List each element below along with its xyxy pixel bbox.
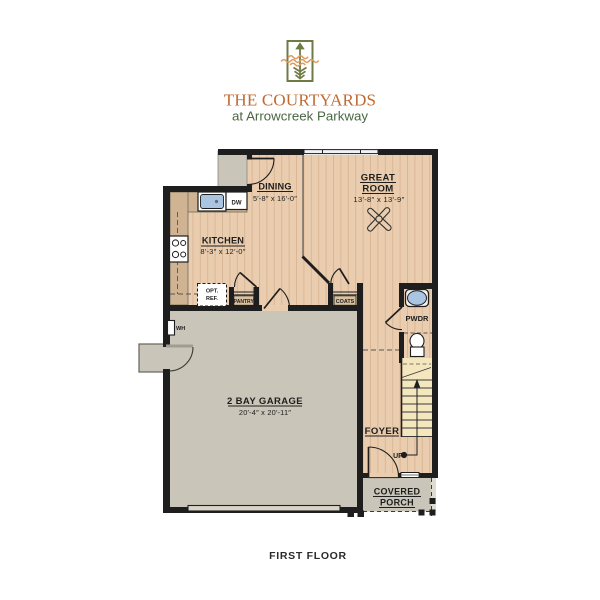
svg-text:FOYER: FOYER (365, 426, 400, 437)
svg-text:DINING: DINING (258, 182, 291, 192)
svg-text:THE COURTYARDS: THE COURTYARDS (224, 91, 376, 110)
svg-text:OPT.: OPT. (206, 289, 219, 295)
svg-text:20′-4″ x 20′-11″: 20′-4″ x 20′-11″ (239, 408, 291, 417)
svg-text:COATS: COATS (336, 299, 355, 305)
svg-text:REF.: REF. (206, 296, 218, 302)
svg-text:KITCHEN: KITCHEN (202, 236, 244, 246)
svg-text:5′-8″ x 16′-0″: 5′-8″ x 16′-0″ (253, 194, 297, 203)
svg-text:GREAT: GREAT (361, 173, 396, 184)
svg-text:PWDR: PWDR (406, 314, 429, 323)
svg-text:8′-3″ x 12′-0″: 8′-3″ x 12′-0″ (200, 247, 245, 256)
svg-text:FIRST FLOOR: FIRST FLOOR (269, 550, 347, 562)
svg-text:13′-8″ x 13′-9″: 13′-8″ x 13′-9″ (353, 195, 404, 204)
svg-text:at Arrowcreek Parkway: at Arrowcreek Parkway (232, 109, 368, 124)
svg-text:DW: DW (232, 201, 242, 207)
svg-text:2 BAY GARAGE: 2 BAY GARAGE (227, 396, 303, 407)
svg-text:ROOM: ROOM (362, 184, 393, 195)
svg-text:COVERED: COVERED (374, 487, 421, 497)
svg-text:PORCH: PORCH (380, 498, 414, 508)
svg-text:PANTRY: PANTRY (234, 299, 255, 305)
svg-text:UP: UP (393, 453, 403, 460)
svg-text:WH: WH (176, 326, 185, 332)
